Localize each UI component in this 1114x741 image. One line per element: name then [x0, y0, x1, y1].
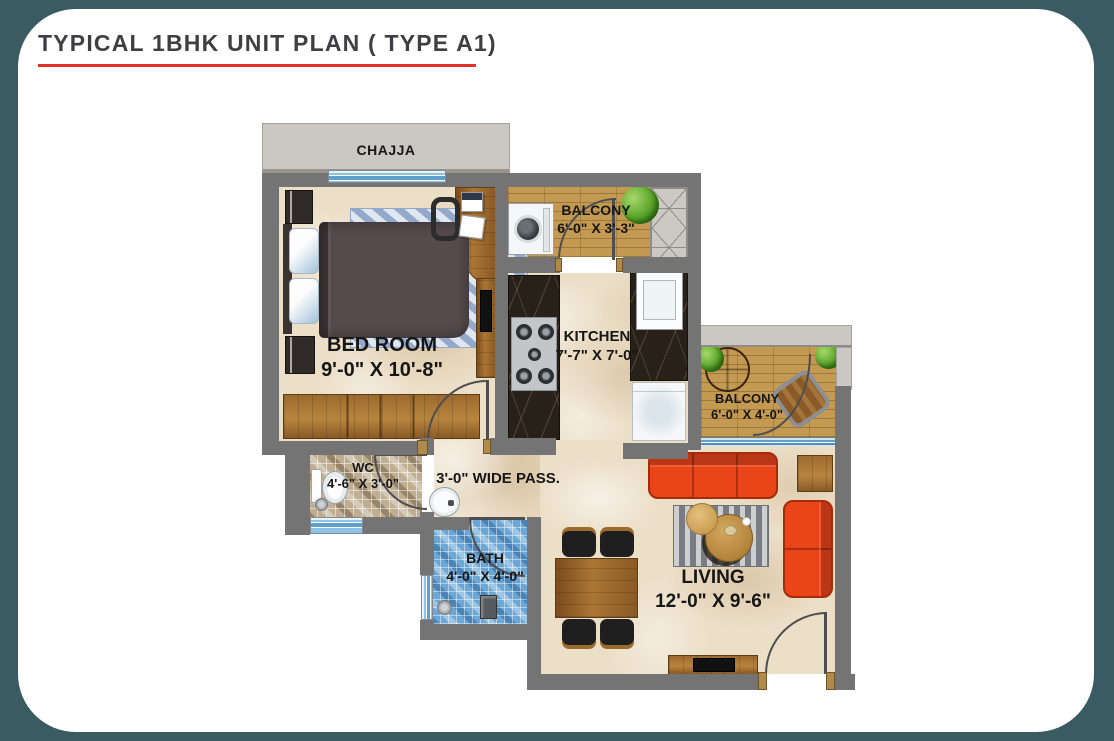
burner: [538, 324, 554, 340]
room-name: BED ROOM: [321, 333, 443, 358]
room-label-kitchen: KITCHEN 7'-7" X 7'-0": [555, 328, 638, 366]
door-jamb: [758, 672, 767, 690]
side-table-icon: [797, 455, 833, 492]
screenshot-root: TYPICAL 1BHK UNIT PLAN ( TYPE A1) CHAJJA: [0, 0, 1114, 741]
room-name: WC: [327, 460, 399, 476]
balcony-chajja-strip: [836, 347, 852, 390]
room-label-balcony-right: BALCONY 6'-0" X 4'-0": [711, 391, 783, 424]
room-label-balcony-top: BALCONY 6'-0" X 3'-3": [557, 202, 635, 237]
pillow-icon: [289, 278, 319, 324]
desk-items-icon: [461, 192, 483, 212]
burner: [528, 348, 541, 361]
floor-drain-icon: [437, 600, 452, 615]
page-title: TYPICAL 1BHK UNIT PLAN ( TYPE A1): [38, 30, 497, 57]
floor-plan: CHAJJA: [255, 118, 855, 710]
sofa-3-seat-icon: [648, 452, 778, 499]
refrigerator-icon: [632, 382, 686, 441]
wall: [279, 441, 427, 455]
room-name: KITCHEN: [555, 328, 638, 347]
wall: [490, 438, 556, 455]
wall: [835, 386, 851, 674]
room-name: BALCONY: [711, 391, 783, 407]
bath-door-leaf: [469, 517, 525, 520]
room-label-wc: WC 4'-6" X 3'-0": [327, 460, 399, 493]
wall: [262, 173, 279, 455]
wall: [500, 257, 560, 273]
bedroom-window: [328, 170, 446, 183]
wall: [495, 173, 508, 454]
faucet-icon: [448, 500, 454, 506]
room-dims: 4'-6" X 3'-0": [327, 476, 399, 492]
bath-window: [421, 575, 433, 620]
bedroom-door-leaf: [486, 380, 489, 441]
kitchen-sink-icon: [636, 272, 683, 330]
nightstand-icon: [285, 336, 315, 374]
washer-drum: [514, 215, 542, 243]
coffee-table-icon: [686, 503, 718, 535]
washer-panel: [543, 208, 550, 252]
burner: [516, 324, 532, 340]
burner: [516, 368, 532, 384]
room-name: BALCONY: [557, 202, 635, 220]
room-dims: 12'-0" X 9'-6": [655, 590, 771, 614]
balcony-railing: [701, 437, 836, 446]
washing-machine-icon: [508, 203, 554, 255]
balcony-chajja-strip: [695, 325, 852, 347]
dining-chair-icon: [600, 619, 634, 645]
room-name: BATH: [446, 550, 524, 568]
floor-drain-icon: [315, 498, 328, 511]
room-dims: 9'-0" X 10'-8": [321, 358, 443, 383]
dining-table-icon: [555, 558, 638, 618]
wall: [623, 257, 688, 273]
wc-window: [310, 517, 363, 534]
plant-icon: [698, 345, 724, 372]
door-jamb: [616, 258, 623, 272]
tv-icon: [693, 658, 735, 672]
wall: [688, 173, 701, 450]
door-jamb: [417, 440, 428, 455]
desk-items-icon: [459, 214, 486, 239]
wall: [429, 517, 469, 530]
dining-chair-icon: [600, 531, 634, 557]
wall: [623, 443, 688, 459]
title-underline: [38, 64, 476, 67]
bedroom-tv-icon: [480, 290, 492, 332]
wall: [420, 624, 541, 640]
room-name: 3'-0" WIDE PASS.: [436, 470, 560, 489]
room-dims: 6'-0" X 4'-0": [711, 407, 783, 423]
desk-chair-icon: [431, 197, 460, 241]
door-jamb: [555, 258, 562, 272]
burner: [538, 368, 554, 384]
room-name: LIVING: [655, 566, 771, 590]
wall: [527, 674, 767, 690]
cup-icon: [742, 517, 751, 526]
wall: [285, 455, 310, 535]
entrance-door-leaf: [824, 612, 827, 674]
gas-stove-icon: [511, 317, 557, 391]
room-label-bedroom: BED ROOM 9'-0" X 10'-8": [321, 333, 443, 383]
room-dims: 7'-7" X 7'-0": [555, 347, 638, 366]
nightstand-icon: [285, 190, 313, 224]
room-label-living: LIVING 12'-0" X 9'-6": [655, 566, 771, 614]
sink-basin: [643, 280, 676, 320]
pillow-icon: [289, 228, 319, 274]
dining-chair-icon: [562, 619, 596, 645]
sofa-2-seat-icon: [783, 500, 833, 598]
wall: [363, 517, 425, 534]
chajja-label: CHAJJA: [356, 142, 415, 160]
bowl-icon: [724, 525, 737, 536]
room-dims: 6'-0" X 3'-3": [557, 220, 635, 238]
room-dims: 4'-0" X 4'-0": [446, 568, 524, 586]
dining-chair-icon: [562, 531, 596, 557]
room-label-passage: 3'-0" WIDE PASS.: [436, 470, 560, 489]
wall: [527, 517, 541, 690]
door-jamb: [483, 439, 491, 454]
shower-icon: [480, 595, 497, 619]
room-label-bath: BATH 4'-0" X 4'-0": [446, 550, 524, 585]
door-jamb: [826, 672, 835, 690]
